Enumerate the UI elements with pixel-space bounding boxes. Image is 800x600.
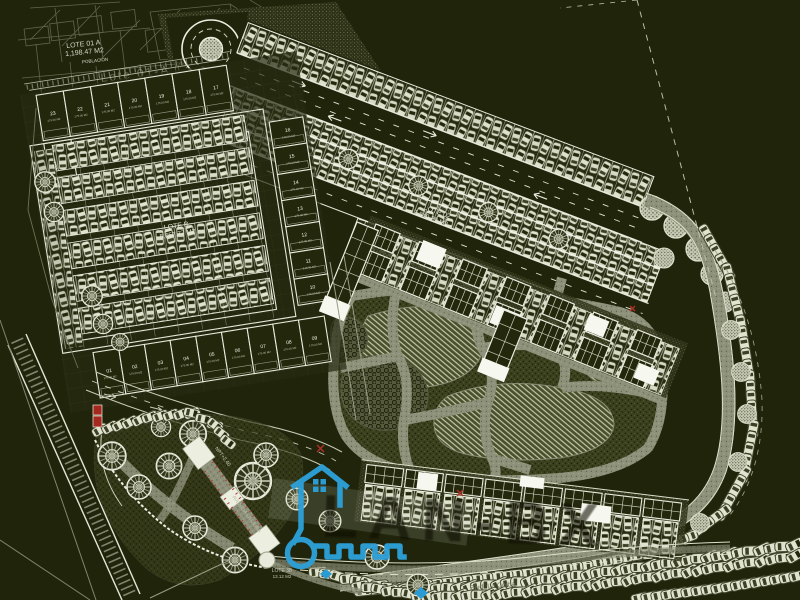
svg-text:13.12 M2: 13.12 M2 bbox=[273, 574, 292, 579]
